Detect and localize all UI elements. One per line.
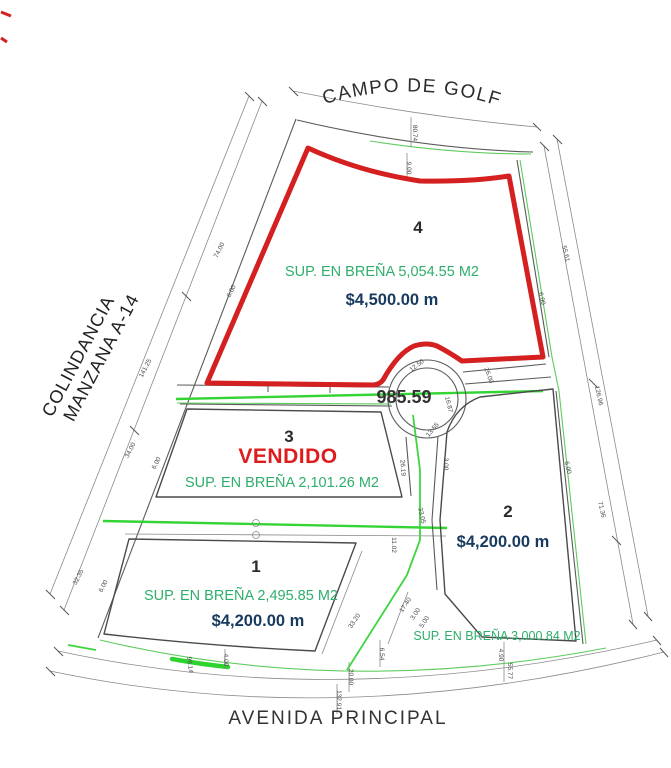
dim-label: 11.02 [390, 537, 397, 553]
lot4-price: $4,500.00 m [346, 291, 439, 309]
dim-label: 74.00 [213, 241, 227, 259]
dim-label: 6.00 [226, 284, 238, 299]
dim-label: 55.61 [560, 245, 571, 263]
lot1-price: $4,200.00 m [212, 612, 305, 630]
dim-label: 32.35 [72, 568, 86, 586]
dim-label: 3.00 [442, 458, 449, 471]
land-plot-plan: CAMPO DE GOLF COLINDANCIA MANZANA A-14 A… [0, 0, 671, 768]
dim-label: 126.96 [593, 385, 604, 406]
dimension-ticks [46, 87, 668, 676]
dim-label: 6.00 [537, 292, 547, 306]
lot-outlines [104, 148, 576, 651]
golf-course-label: CAMPO DE GOLF [320, 75, 504, 111]
lot1-area: SUP. EN BREÑA 2,495.85 M2 [144, 587, 338, 604]
lot3-area: SUP. EN BREÑA 2,101.26 M2 [185, 474, 379, 491]
dim-label: 80.74 [411, 125, 418, 142]
lot4-area: SUP. EN BREÑA 5,054.55 M2 [285, 263, 479, 280]
lot4-number: 4 [413, 218, 423, 237]
lot2-price: $4,200.00 m [457, 533, 550, 551]
dim-label: 17.40 [398, 596, 413, 614]
dimension-labels: 80.74 9.00 74.00 6.00 141.25 34.00 6.00 … [72, 125, 607, 710]
dim-label: 3.00 [409, 607, 422, 622]
roundabout-measurement: 985.59 [376, 387, 431, 407]
lot3-number: 3 [284, 427, 293, 446]
dim-label: 4.90 [497, 649, 504, 662]
lot2-number: 2 [503, 502, 512, 521]
colindancia-label: COLINDANCIA MANZANA A-14 [38, 281, 143, 430]
dim-label: 9.00 [405, 162, 412, 175]
dim-label: 132.91 [335, 690, 342, 710]
dim-label: 16.87 [443, 396, 454, 414]
dim-label: 71.36 [596, 501, 606, 519]
dim-label: 6.00 [563, 461, 573, 475]
lot1-number: 1 [251, 557, 260, 576]
dim-label: 6.00 [98, 579, 110, 594]
dim-label: 5.00 [418, 615, 431, 630]
dim-label: 34.00 [124, 441, 138, 459]
dim-label: 55.77 [506, 663, 513, 680]
dim-label: 33.05 [416, 507, 426, 525]
dim-label: 33.20 [347, 612, 362, 630]
red-crop-marks [1, 12, 11, 42]
dim-label: 6.54 [378, 648, 385, 661]
dim-label: 6.00 [151, 456, 163, 471]
dim-label: 20.00 [347, 669, 354, 686]
avenida-principal-label: AVENIDA PRINCIPAL [228, 708, 447, 729]
lot3-sold-badge: VENDIDO [238, 445, 337, 468]
dim-label: 99.14 [185, 656, 194, 673]
dim-label: 26.19 [398, 460, 406, 477]
dim-label: 4.00 [222, 654, 229, 667]
site-plan-svg: CAMPO DE GOLF COLINDANCIA MANZANA A-14 A… [0, 0, 671, 768]
lot2-area: SUP. EN BREÑA 3,000.84 M2 [413, 629, 580, 643]
